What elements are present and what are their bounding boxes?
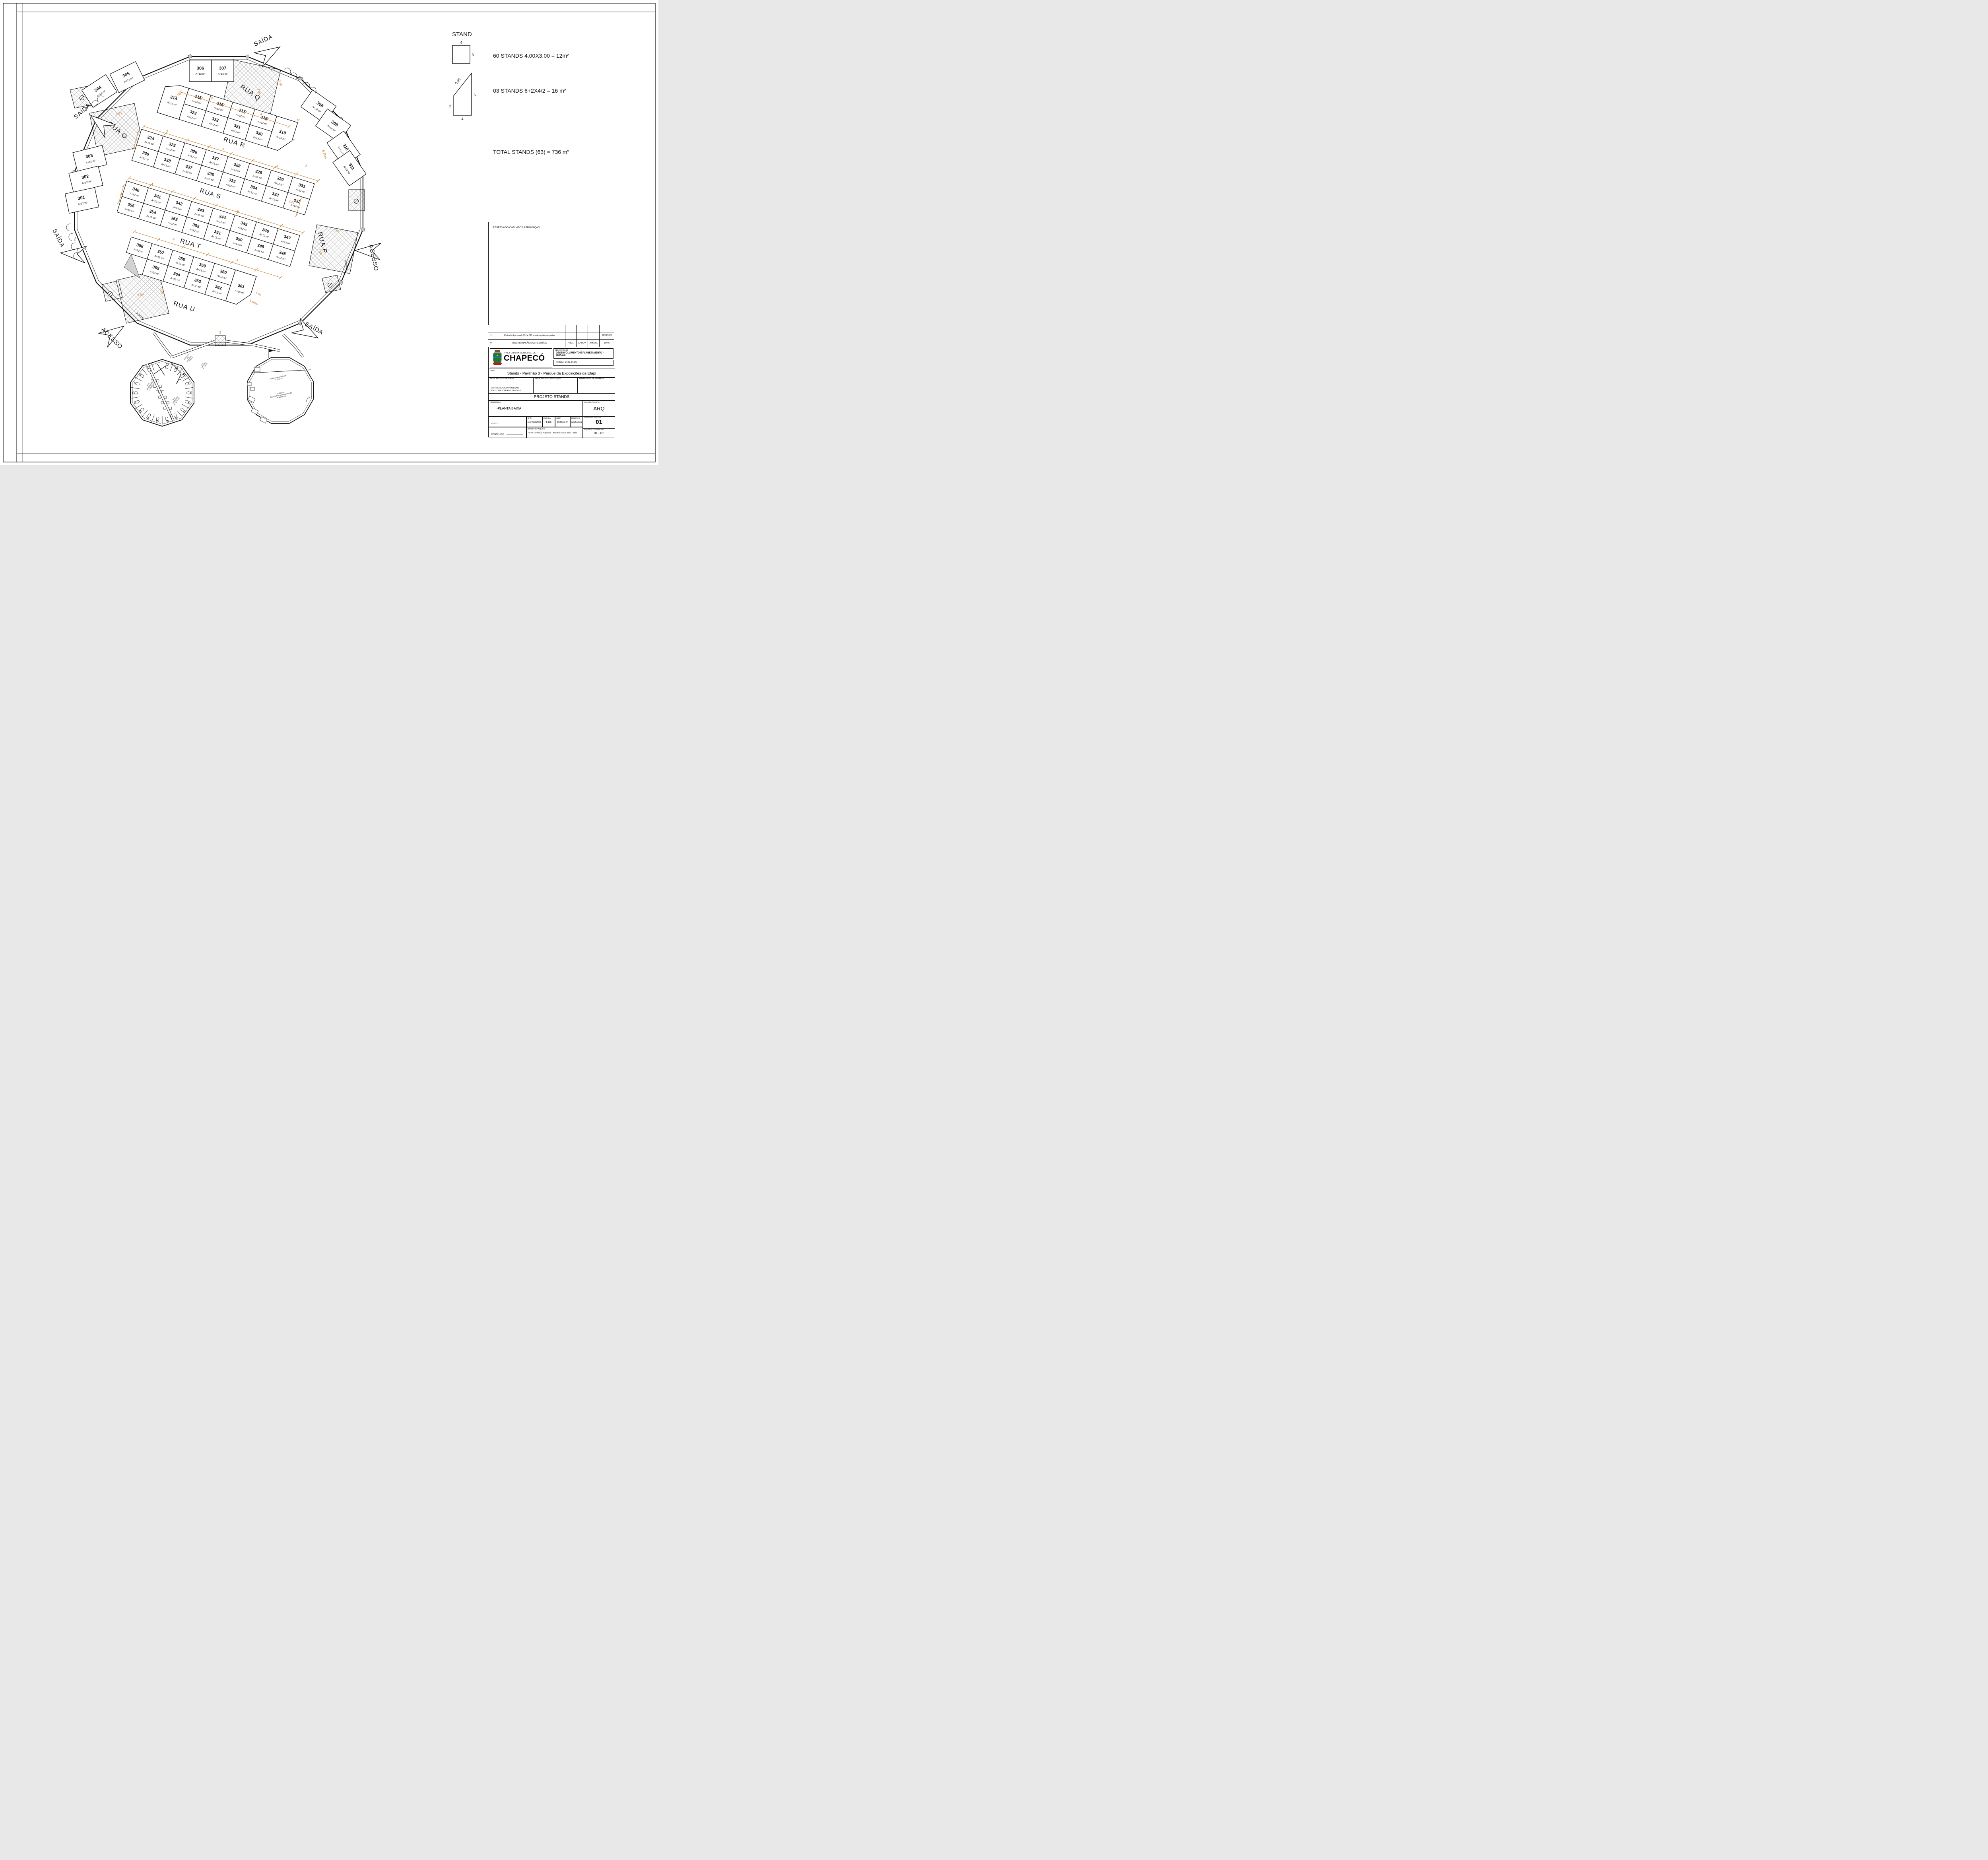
referencia-cell: REFERÊNCIA -PLANTA BAIXA	[489, 400, 583, 416]
wc-sink	[164, 396, 167, 398]
shape	[133, 392, 134, 394]
dim-tick	[208, 145, 211, 148]
shape	[134, 392, 138, 394]
desenho-cell: DESENHO Ana/Larissa	[570, 416, 583, 427]
project-title-cell: PROJETO STANDS	[489, 393, 615, 400]
project-title: PROJETO STANDS	[489, 395, 615, 399]
legend-title: STAND	[452, 31, 472, 38]
referencia-label: REFERÊNCIA	[490, 401, 582, 403]
exit-label-saida: SAÍDA	[51, 228, 66, 249]
data-cell: DATA MARÇO/2023	[526, 416, 542, 427]
sigla-cell: SIGLA DO PROJETO ARQ	[583, 400, 615, 416]
revision-aprov2	[588, 332, 600, 339]
secretaria-value: DESENVOLVIMENTO E PLANEJAMENTO - SEPLAD	[556, 352, 613, 357]
exit-label-saida: SAÍDA	[253, 33, 274, 48]
legend-trapezoid-stand: 5,66 6 2 4	[447, 71, 480, 123]
dim-tick	[295, 173, 298, 176]
dim-tick	[206, 253, 209, 256]
drawing-sheet: 314A=16 m²315A=12 m²316A=12 m²317A=12 m²…	[0, 0, 658, 465]
legend-square-stand: 4 3	[449, 38, 477, 69]
desenho-label: DESENHO	[571, 417, 582, 419]
shape	[156, 420, 158, 422]
door-arc	[66, 223, 71, 231]
stand-301: 301A=12 m²	[65, 188, 99, 214]
stand-area-307: A=12 m²	[218, 73, 228, 76]
shape	[186, 392, 190, 394]
wc-sink	[156, 390, 158, 393]
escala-value: 1:125	[543, 421, 555, 423]
dim-tick	[230, 261, 233, 264]
col-proj: PROJ.	[565, 340, 577, 347]
wall-post	[246, 55, 249, 58]
dim-diag: 5,66	[454, 77, 462, 85]
dim-label-d4: 4	[166, 129, 169, 133]
stand-306: 306A=12 m²	[189, 60, 212, 82]
door-tag-saida: SAÍDA	[74, 237, 76, 241]
dim-label-d4: 4	[236, 258, 239, 262]
secretaria-label: SECRETARIA DE	[555, 349, 613, 351]
stand-302: 302A=12 m²	[69, 166, 103, 193]
dim-tick	[280, 224, 283, 227]
stand-number-307: 307	[219, 66, 226, 71]
sequencia-label: SEQUÊNCIA DAS PRANCHAS	[584, 429, 615, 431]
dim-label-d6: 6	[292, 138, 296, 141]
corridor-walkway-left-inner	[172, 341, 215, 357]
stand-307: 307A=12 m²	[212, 60, 234, 82]
kitchen-sink	[247, 382, 251, 386]
dim-tick	[279, 276, 282, 279]
dim-label-d566: 5.66m	[322, 149, 328, 159]
street-label-rua-t: RUA T	[179, 237, 202, 250]
wc-sink	[157, 380, 159, 382]
visto-cell: VISTO	[489, 416, 526, 427]
col-desc: DISCRIMINAÇÃO DAS REVISÕES	[494, 340, 565, 347]
dim-label-d4: 4	[172, 237, 175, 241]
stand-box-307	[212, 60, 234, 82]
col-aprov2: APROV.	[588, 340, 600, 347]
wc-sink	[169, 407, 171, 410]
resp-projeto-cell: RESP. TÉCNICO PROJETO LARISSA SAUGO PIOV…	[489, 377, 533, 393]
dim-tick	[215, 204, 218, 207]
dim-tick	[171, 190, 174, 193]
chapeco-coat-of-arms	[491, 349, 503, 366]
wall-post	[361, 228, 365, 231]
legend-line2: 03 STANDS 6+2X4/2 = 16 m²	[493, 87, 566, 94]
dim-tick	[133, 230, 136, 233]
wc-sink	[159, 396, 161, 398]
dim-label-d4: 4	[221, 147, 224, 151]
resp-projeto-label: RESP. TÉCNICO PROJETO	[490, 378, 533, 380]
dim-label-d3: 3	[296, 118, 300, 121]
stand-area-306: A=12 m²	[196, 73, 206, 76]
prancha-value: 01	[583, 419, 615, 425]
arquivo-cell: DESENHO/ARQUIVO Y:\SP-Larissa\3. Projeto…	[526, 427, 583, 438]
escala-label: ESCALA	[544, 417, 555, 419]
dim-label-d2: 2	[305, 164, 307, 168]
dim-top: 4	[460, 41, 462, 45]
legend-total: TOTAL STANDS (63) = 736 m²	[493, 149, 569, 155]
obras-publicas: OBRAS PÚBLICAS	[556, 361, 613, 364]
dim-tick	[182, 245, 185, 249]
escala-cell: ESCALA 1:125	[542, 416, 555, 427]
stand-box-305	[110, 62, 145, 93]
sigla-label: SIGLA DO PROJETO	[584, 401, 615, 403]
visto-signature-line	[500, 421, 516, 424]
prefeitura-label: PREFEITURA DE CHAPECÓ	[579, 378, 615, 380]
data-label: DATA	[528, 417, 542, 419]
dim-tick	[295, 214, 298, 217]
dim-label-d2: 2	[210, 340, 214, 342]
revision-proj	[565, 332, 577, 339]
area-value: 1932,59 m²	[555, 421, 570, 423]
stand-305: 305A=12 m²	[110, 62, 145, 93]
dim-label-d4: 4	[276, 165, 278, 169]
wc-sink	[161, 390, 164, 393]
toilet-fixture	[133, 392, 138, 394]
approval-box-label: RESERVADO CARIMBOS APROVAÇÃO	[493, 226, 614, 229]
label-hall-metalico: METALICOHALLEXTERNOA: 7,95 m2	[184, 353, 193, 363]
dim-tick	[255, 268, 258, 272]
col-n: N°	[488, 340, 494, 347]
stand-trapezoid-shape	[453, 73, 472, 115]
dim-bottom: 4	[461, 117, 463, 121]
prefeitura-cell: PREFEITURA DE CHAPECÓ	[578, 377, 615, 393]
wc-sink	[161, 402, 163, 404]
dim-tick	[251, 159, 254, 162]
resp-execucao-cell: RESP. TÉCNICO EXECUÇÃO	[533, 377, 578, 393]
dim-tick	[301, 231, 305, 234]
door-arc	[70, 242, 76, 250]
resp-projeto-name: LARISSA SAUGO PIOVESAN	[491, 387, 519, 389]
shape	[190, 392, 192, 394]
obra-label: OBRA	[490, 369, 495, 371]
dead-corner-356	[124, 254, 140, 278]
kitchen-fixture	[254, 367, 260, 372]
dim-tick	[316, 179, 320, 183]
dim-right: 6	[474, 93, 476, 97]
wc-sink	[163, 407, 166, 410]
revision-header-row: N° DISCRIMINAÇÃO DAS REVISÕES PROJ. APRO…	[488, 340, 614, 347]
label-hall-externo: HALLEXTERNOA: 7,86 m2	[200, 361, 208, 369]
dim-tick	[142, 125, 146, 128]
stand-box-302	[69, 166, 103, 193]
referencia-value: -PLANTA BAIXA	[497, 406, 582, 410]
dim-left: 2	[449, 104, 451, 108]
logo-block: PREFEITURA MUNICIPAL DE CHAPECÓ	[490, 348, 552, 367]
data-value: MARÇO/2023	[527, 421, 542, 423]
revision-table: 1 Retirada dos stands 312 e 313 e realoc…	[488, 325, 614, 347]
dim-right: 3	[472, 53, 474, 57]
legend-line1: 60 STANDS 4.00X3.00 = 12m²	[493, 52, 569, 59]
wc-sink	[159, 385, 161, 388]
dim-label-d707: 7.07	[278, 80, 283, 87]
sequencia-cell: SEQUÊNCIA DAS PRANCHAS 01 - 01	[583, 428, 615, 438]
stand-box-301	[65, 188, 99, 214]
shape	[166, 363, 169, 365]
resp-projeto-crea: ENG. CIVIL CREA/SC 140751-5	[491, 390, 521, 392]
prancha-cell: NUMERO DA PRANCHA 01	[583, 416, 615, 428]
revision-number: 1	[488, 332, 494, 339]
area-label: ÁREA	[556, 417, 570, 419]
stand-number-306: 306	[197, 66, 204, 71]
dim-tick	[258, 217, 261, 221]
concluido-cell: CONCLUIDO	[489, 427, 526, 438]
concluido-label: CONCLUIDO	[491, 433, 504, 436]
revision-date: 20/03/2023	[600, 332, 614, 339]
sequencia-value: 01 - 01	[583, 431, 615, 435]
arquivo-path: Y:\SP-Larissa\3. Projetos\2 - Projetos S…	[528, 432, 582, 434]
sigla-value: ARQ	[583, 406, 615, 412]
exit-arrow	[60, 244, 86, 263]
stand-square-shape	[452, 45, 470, 64]
revision-description: Retirada dos stands 312 e 313 e realocaç…	[494, 332, 565, 339]
street-label-rua-u: RUA U	[173, 300, 196, 313]
resp-execucao-label: RESP. TÉCNICO EXECUÇÃO	[535, 378, 577, 380]
dim-tick	[193, 197, 196, 200]
obra-title: Stands - Pavilhão 3 - Parque da Exposiçõ…	[489, 371, 615, 376]
wall-post	[188, 54, 192, 58]
obra-cell: OBRA Stands - Pavilhão 3 - Parque da Exp…	[489, 369, 615, 377]
col-data: DATA	[600, 340, 614, 347]
revision-aprov1	[577, 332, 588, 339]
revision-row: 1 Retirada dos stands 312 e 313 e realoc…	[488, 332, 614, 340]
dim-tick	[186, 138, 189, 142]
revision-row-empty	[488, 325, 614, 332]
dim-label-d566: 5.66m	[249, 299, 258, 306]
title-block: PREFEITURA MUNICIPAL DE CHAPECÓ SECRETAR…	[488, 347, 614, 437]
approval-stamps-box: RESERVADO CARIMBOS APROVAÇÃO	[488, 222, 614, 325]
dim-label-d401: 4.01	[255, 291, 262, 297]
dim-tick	[229, 152, 233, 155]
dim-label-d2: 2	[219, 331, 221, 334]
door-arc	[68, 233, 73, 240]
area-cell: ÁREA 1932,59 m²	[555, 416, 570, 427]
secretaria-cell: SECRETARIA DE DESENVOLVIMENTO E PLANEJAM…	[553, 348, 613, 359]
concluido-signature-line	[507, 432, 523, 435]
desenho-value: Ana/Larissa	[571, 421, 582, 423]
col-aprov1: APROV.	[577, 340, 588, 347]
shape	[166, 420, 169, 422]
wc-sink	[167, 402, 169, 404]
wc-sink	[153, 385, 156, 388]
arquivo-label: DESENHO/ARQUIVO	[528, 428, 582, 430]
visto-label: VISTO	[491, 423, 497, 425]
stand-box-306	[189, 60, 212, 82]
obras-publicas-cell: OBRAS PÚBLICAS	[553, 360, 613, 366]
toilet-fixture	[186, 392, 192, 394]
street-label-rua-s: RUA S	[199, 187, 222, 200]
dim-tick	[128, 177, 131, 180]
dim-tick	[157, 238, 160, 241]
org-name: CHAPECÓ	[504, 354, 545, 363]
kitchen-sink	[250, 387, 254, 390]
hatch-walkway-node	[215, 336, 225, 346]
